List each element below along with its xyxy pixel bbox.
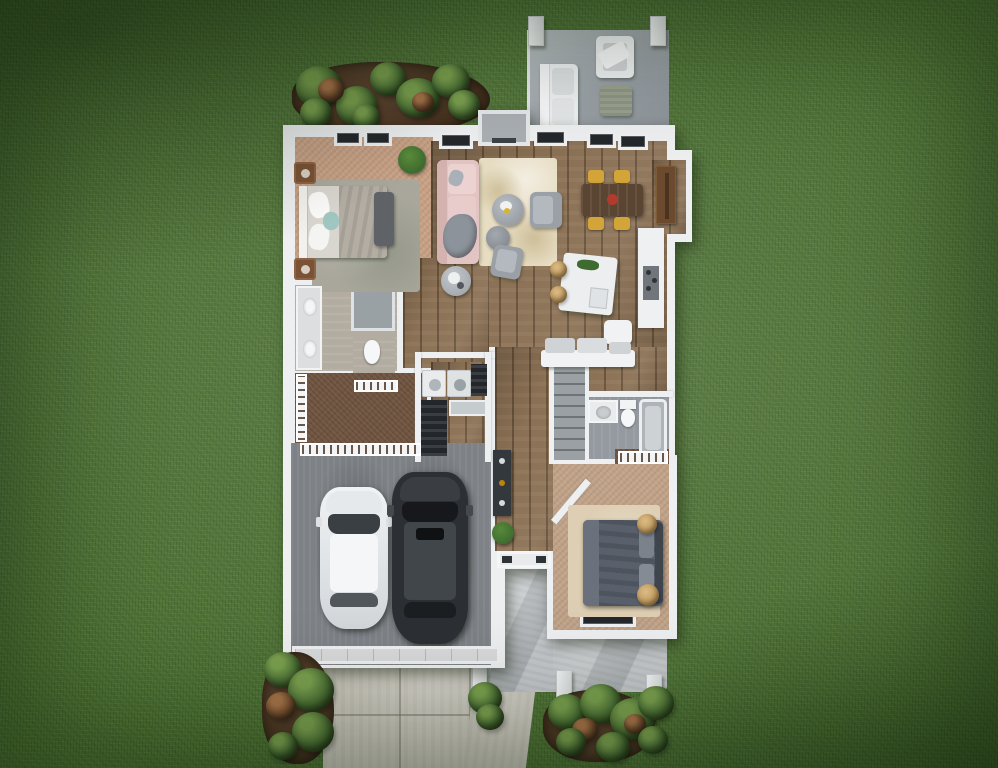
wall-counter <box>638 228 664 328</box>
dining-chair-1 <box>588 170 604 183</box>
sedan-mirror <box>316 517 322 527</box>
fireplace-slot <box>492 138 516 143</box>
bed2-folded-throw <box>583 520 599 606</box>
suv-sunroof <box>416 528 444 540</box>
window-master-2 <box>364 130 392 146</box>
suv-rear-window <box>404 602 456 618</box>
island-sink <box>589 287 609 309</box>
family-sofa-cushion <box>609 342 631 354</box>
master-bed-accent-pillow <box>323 212 339 230</box>
pantry-shelf-lower <box>421 400 447 456</box>
toilet-2-tank <box>620 400 636 409</box>
nightstand-upper <box>294 162 316 184</box>
chair-seat <box>494 248 518 273</box>
window-master-1 <box>334 130 362 146</box>
window-living-2 <box>534 129 567 146</box>
nightstand-lower <box>294 258 316 280</box>
dining-chair-2 <box>614 170 630 183</box>
shrub <box>556 728 586 756</box>
entry-console <box>493 450 511 516</box>
gray-throw-blanket <box>443 214 477 258</box>
console-decor <box>499 458 505 464</box>
shrub-rust <box>266 692 296 720</box>
wall-laundry-top <box>415 352 495 358</box>
round-side-table <box>441 266 471 296</box>
aerial-lot-scene <box>0 0 998 768</box>
front-door <box>497 551 551 568</box>
side-table-bowl <box>457 282 464 289</box>
shrub <box>638 686 674 720</box>
foot-bench <box>374 192 394 246</box>
suv-mirror <box>387 505 394 516</box>
fireplace-chimney <box>478 110 530 146</box>
suv-mirror <box>466 505 473 516</box>
closet-rod-mid <box>354 380 398 392</box>
red-centerpiece <box>607 194 618 205</box>
hanger-rod <box>618 451 668 464</box>
bathtub-basin <box>645 406 661 450</box>
shrub <box>638 726 668 754</box>
buffet-sideboard <box>656 166 676 224</box>
family-sofa-cushion <box>577 338 607 353</box>
sink <box>303 340 317 358</box>
kitchen-island <box>558 252 618 315</box>
sedan-windshield <box>328 514 380 534</box>
house <box>0 0 998 768</box>
burner <box>652 278 657 283</box>
toilet-2-bowl <box>621 409 635 427</box>
closet-rod-left <box>296 374 307 442</box>
gray-side-chair <box>489 244 524 281</box>
sedan-hood <box>326 491 382 513</box>
sink-2 <box>596 406 611 419</box>
dining-chair-3 <box>588 217 604 230</box>
bathtub <box>639 399 667 457</box>
vanity-2 <box>588 400 618 423</box>
cooktop <box>643 266 659 300</box>
utility-sink <box>449 400 487 416</box>
window-dining-1 <box>587 131 616 148</box>
dining-table <box>581 184 643 216</box>
decor-yellow <box>504 208 510 214</box>
window-living-1 <box>439 132 473 149</box>
sink <box>303 298 317 316</box>
dining-chair-4 <box>614 217 630 230</box>
lamp <box>301 169 310 178</box>
closet-rod-bottom <box>300 443 422 456</box>
pantry-shelf-upper <box>471 364 487 396</box>
sedan-rear-window <box>330 593 378 607</box>
window-dining-2 <box>618 133 648 150</box>
armchair-seat <box>533 196 553 224</box>
console-decor <box>499 480 505 486</box>
double-vanity <box>296 286 322 370</box>
coffee-table-large <box>492 194 524 226</box>
gray-armchair <box>530 192 562 228</box>
burner <box>646 286 651 291</box>
console-decor <box>499 500 505 506</box>
lamp <box>301 265 310 274</box>
washer <box>422 370 446 397</box>
white-sedan <box>320 487 388 629</box>
shrub <box>292 712 334 752</box>
family-sofa-cushion <box>545 338 575 353</box>
bar-stool-1 <box>550 261 567 278</box>
burner <box>646 270 651 275</box>
family-sofa-chaise <box>604 320 632 344</box>
washer-door <box>429 379 441 391</box>
toilet-master <box>364 340 380 364</box>
front-door-sidelite <box>536 556 546 563</box>
suv-windshield <box>402 502 458 522</box>
shrub-entry <box>476 704 504 730</box>
suv-hood <box>400 477 460 501</box>
master-bed-headboard <box>299 186 308 258</box>
bar-stool-2 <box>550 286 567 303</box>
dryer-door <box>454 379 466 391</box>
stairwell <box>549 352 589 464</box>
buffet-decor <box>665 173 669 219</box>
entry-plant <box>492 522 514 544</box>
dryer <box>447 370 471 397</box>
potted-plant <box>398 146 426 174</box>
wall-bath2-top <box>581 391 673 397</box>
shrub <box>596 732 630 762</box>
shrub <box>268 732 298 760</box>
sedan-roof <box>330 534 378 592</box>
garage-door <box>292 646 500 664</box>
pouf-lower <box>637 584 659 606</box>
island-greens <box>577 259 600 271</box>
pouf-upper <box>637 514 657 534</box>
dark-gray-suv <box>392 472 468 644</box>
front-door-sidelite <box>502 556 512 563</box>
pink-sectional-sofa <box>437 160 479 264</box>
